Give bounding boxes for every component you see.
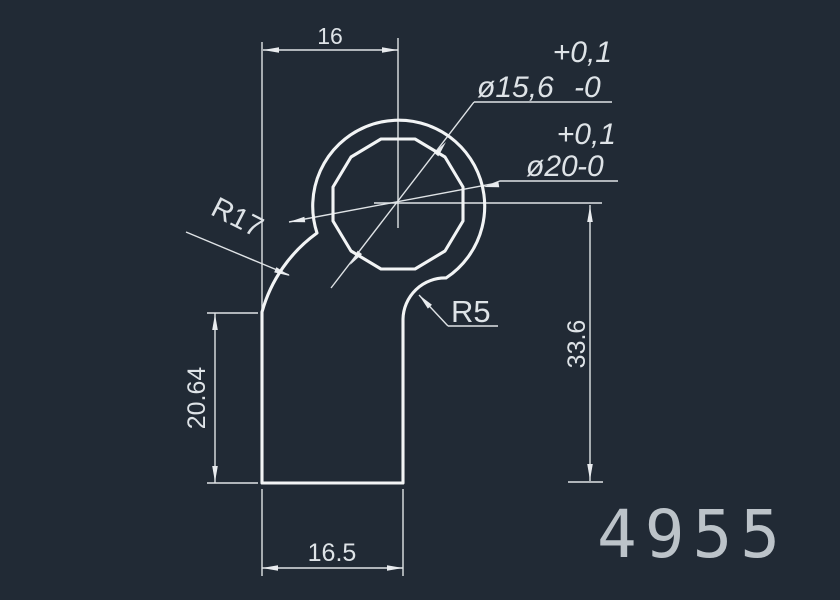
cad-canvas: 16 16.5 20.64 33.6 R17 R5 ø15,6 -0 +0,1 … (0, 0, 840, 600)
inner-diameter-upper-tolerance: +0,1 (553, 36, 612, 69)
radius-label-right: R5 (451, 294, 491, 329)
dim-top-width-label: 16 (317, 23, 343, 49)
inner-diameter-value: ø15,6 (477, 71, 554, 104)
dim-left-height-label: 20.64 (183, 367, 211, 430)
dim-bottom-width-label: 16.5 (308, 539, 357, 567)
outer-diameter-upper-tolerance: +0,1 (557, 118, 616, 151)
outer-diameter-lower-tolerance: -0 (577, 150, 604, 183)
outer-diameter-value: ø20 (526, 150, 578, 183)
dim-right-height-label: 33.6 (563, 320, 591, 369)
part-number: 4955 (597, 496, 788, 573)
inner-diameter-lower-tolerance: -0 (574, 71, 601, 104)
drawing-svg: 16 16.5 20.64 33.6 R17 R5 ø15,6 -0 +0,1 … (0, 0, 840, 600)
